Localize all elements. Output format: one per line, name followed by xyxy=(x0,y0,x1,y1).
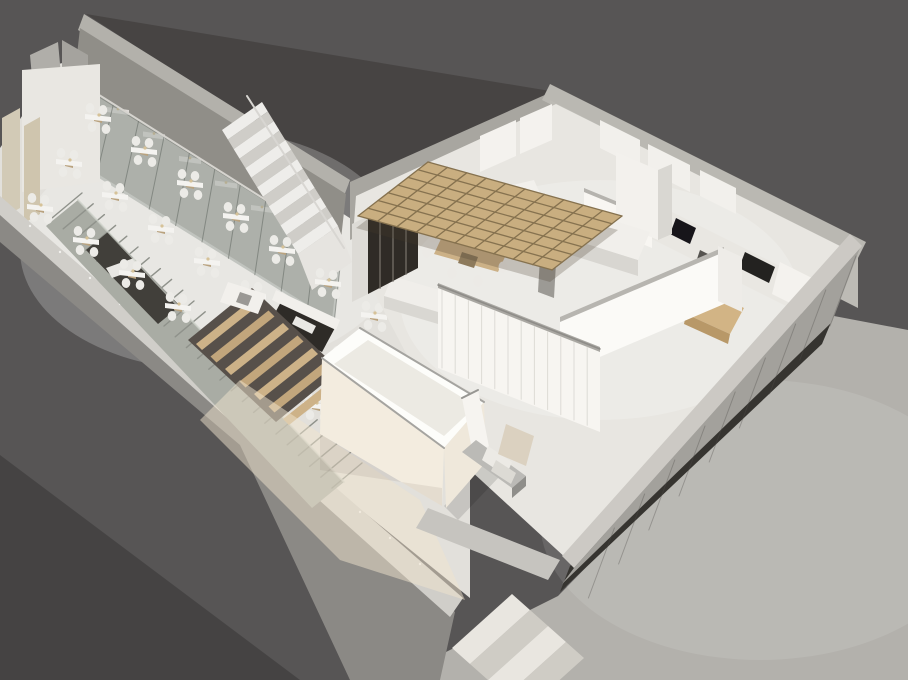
dining-table-chair-2-3-1 xyxy=(179,294,188,304)
dining-table-lamp-2-1 xyxy=(85,236,88,239)
dining-table-chair-2-0-2 xyxy=(30,212,39,222)
dining-table-chair-0-3-0 xyxy=(224,202,233,212)
dining-table-chair-0-1-1 xyxy=(145,138,154,148)
dining-table-chair-0-3-2 xyxy=(226,221,235,231)
dining-table-chair-2-0-1 xyxy=(41,195,50,205)
dining-table-chair-0-2-3 xyxy=(194,190,203,200)
dining-table-chair-0-5-2 xyxy=(318,287,327,297)
dining-table-chair-1-0-3 xyxy=(73,169,82,179)
dining-table-chair-2-3-2 xyxy=(168,311,177,321)
dining-table-lamp-0-2 xyxy=(189,179,192,182)
dining-table-chair-0-2-2 xyxy=(180,188,189,198)
chair xyxy=(448,268,457,279)
dining-table-chair-0-0-0 xyxy=(86,103,95,113)
dining-table-lamp-0-5 xyxy=(327,278,330,281)
chair xyxy=(474,276,483,287)
dining-table-lamp-1-0 xyxy=(68,158,71,161)
dining-table-chair-1-3-0 xyxy=(195,247,204,257)
dining-table-lamp-1-3 xyxy=(206,257,209,260)
dining-table-lamp-1-1 xyxy=(114,191,117,194)
dining-table-chair-1-4-1 xyxy=(254,282,263,292)
dining-table-chair-1-1-3 xyxy=(119,202,128,212)
dining-table-chair-2-0-0 xyxy=(28,193,37,203)
dining-table-chair-0-5-0 xyxy=(316,268,325,278)
dining-table-chair-1-0-0 xyxy=(57,148,66,158)
dining-table-chair-0-4-2 xyxy=(272,254,281,264)
dining-table-chair-1-3-2 xyxy=(197,266,206,276)
dining-table-chair-2-1-2 xyxy=(76,245,85,255)
dining-table-chair-1-1-1 xyxy=(116,183,125,193)
dining-table-chair-0-5-1 xyxy=(329,270,338,280)
dining-table-chair-0-3-1 xyxy=(237,204,246,214)
mid-tall-cabinet-side xyxy=(658,164,672,240)
dining-table-chair-0-6-2 xyxy=(364,320,373,330)
dining-table-chair-1-0-2 xyxy=(59,167,68,177)
dining-table-chair-0-4-0 xyxy=(270,235,279,245)
dining-table-chair-0-0-3 xyxy=(102,124,111,134)
dining-table-chair-0-1-3 xyxy=(148,157,157,167)
dining-table-chair-1-1-0 xyxy=(103,181,112,191)
dining-table-chair-0-0-1 xyxy=(99,105,108,115)
cap-fastener-1 xyxy=(59,251,61,253)
dining-table-chair-1-2-0 xyxy=(149,214,158,224)
dining-table-chair-2-3-3 xyxy=(182,313,191,323)
dining-table-chair-1-0-1 xyxy=(70,150,79,160)
dining-table-chair-1-2-2 xyxy=(151,233,160,243)
wall-b-endcap xyxy=(718,246,742,312)
dining-table-lamp-1-2 xyxy=(160,224,163,227)
dining-table-chair-2-1-0 xyxy=(74,226,83,236)
dining-table-chair-0-0-2 xyxy=(88,122,97,132)
dining-table-chair-0-5-3 xyxy=(332,289,341,299)
dining-table-chair-0-2-0 xyxy=(178,169,187,179)
dining-table-chair-0-1-0 xyxy=(132,136,141,146)
dining-table-lamp-0-1 xyxy=(143,146,146,149)
dining-table-chair-0-6-3 xyxy=(378,322,387,332)
dining-table-chair-2-1-1 xyxy=(87,228,96,238)
dining-table-chair-1-3-1 xyxy=(208,249,217,259)
dining-table-chair-0-4-1 xyxy=(283,237,292,247)
dining-table-chair-1-2-1 xyxy=(162,216,171,226)
dining-table-lamp-2-0 xyxy=(39,203,42,206)
dining-table-chair-2-1-3 xyxy=(90,247,99,257)
dining-table-chair-1-1-2 xyxy=(105,200,114,210)
dining-table-chair-1-3-3 xyxy=(211,268,220,278)
dining-table-chair-2-2-3 xyxy=(136,280,145,290)
dining-table-chair-2-3-0 xyxy=(166,292,175,302)
dining-table-chair-0-6-0 xyxy=(362,301,371,311)
render-stage xyxy=(0,0,908,680)
dining-table-chair-2-0-3 xyxy=(44,214,53,224)
dining-table-lamp-0-0 xyxy=(97,113,100,116)
dining-table-lamp-0-6 xyxy=(373,311,376,314)
cap-fastener-0 xyxy=(29,225,31,227)
dining-table-lamp-2-2 xyxy=(131,269,134,272)
dining-table-chair-0-3-3 xyxy=(240,223,249,233)
cap-fastener-2 xyxy=(89,277,91,279)
dining-table-chair-1-2-3 xyxy=(165,235,174,245)
dining-table-lamp-2-3 xyxy=(177,302,180,305)
dining-table-chair-2-6-2 xyxy=(306,410,315,420)
dining-table-chair-2-2-1 xyxy=(133,261,142,271)
dining-table-chair-0-1-2 xyxy=(134,155,143,165)
dining-table-chair-2-2-2 xyxy=(122,278,131,288)
dining-table-chair-2-2-0 xyxy=(120,259,129,269)
dining-table-lamp-0-3 xyxy=(235,212,238,215)
dining-table-lamp-0-4 xyxy=(281,245,284,248)
floor-plan-3d-render xyxy=(0,0,908,680)
dining-table-chair-0-4-3 xyxy=(286,256,295,266)
dining-table-chair-0-2-1 xyxy=(191,171,200,181)
